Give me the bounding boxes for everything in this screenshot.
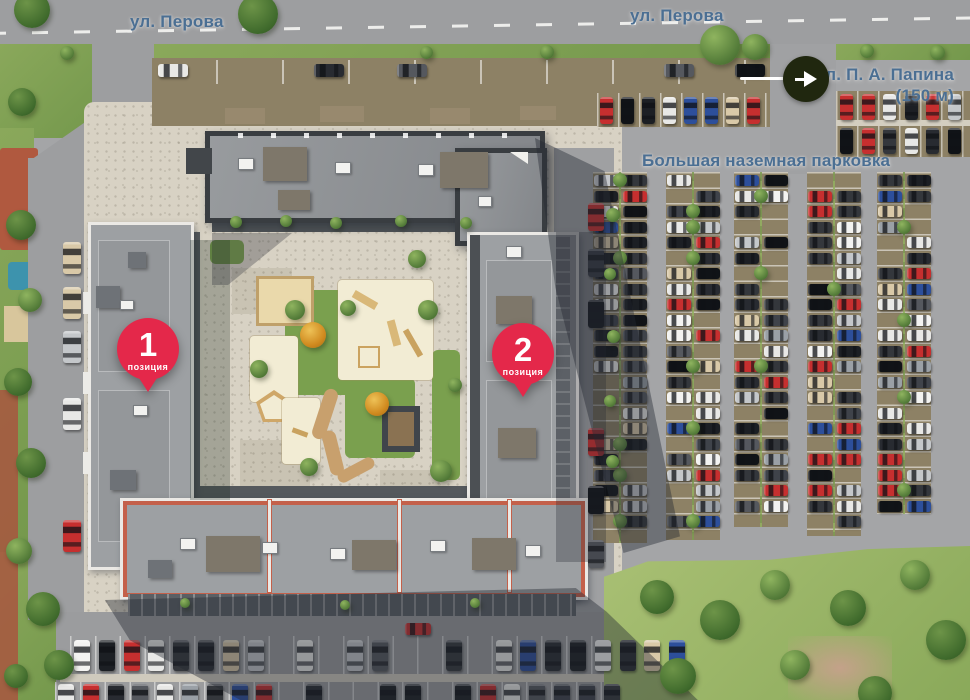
car: [664, 64, 694, 77]
building-annex: [186, 148, 212, 174]
tree-icon: [700, 25, 740, 65]
car: [837, 346, 861, 357]
tree-icon: [686, 514, 700, 528]
car: [63, 331, 81, 363]
car: [314, 64, 344, 77]
car: [124, 640, 140, 671]
car: [907, 191, 931, 202]
car: [594, 346, 618, 357]
tree-icon: [897, 220, 911, 234]
tree-icon: [613, 437, 627, 451]
tree-icon: [230, 216, 242, 228]
tree-icon: [470, 598, 480, 608]
car: [405, 623, 431, 635]
tree-icon: [60, 46, 74, 60]
car: [667, 315, 691, 326]
car: [623, 315, 647, 326]
tree-icon: [830, 590, 866, 626]
ac-unit: [238, 158, 254, 170]
car: [837, 315, 861, 326]
car: [397, 64, 427, 77]
car: [570, 640, 586, 671]
car: [948, 128, 961, 154]
car: [764, 454, 788, 465]
tree-icon: [395, 215, 407, 227]
car: [696, 408, 720, 419]
car: [837, 268, 861, 279]
marker-position-1[interactable]: 1 позиция: [117, 318, 179, 380]
car: [907, 299, 931, 310]
tree-icon: [540, 45, 554, 59]
tree-icon: [686, 251, 700, 265]
tree-icon: [900, 560, 930, 590]
label-big-parking: Большая наземная парковка: [642, 151, 890, 171]
car: [735, 470, 759, 481]
car: [764, 439, 788, 450]
tree-icon: [365, 392, 389, 416]
car: [623, 377, 647, 388]
ac-unit: [180, 538, 196, 550]
car: [735, 439, 759, 450]
car: [878, 454, 902, 465]
car: [764, 485, 788, 496]
car: [764, 346, 788, 357]
car: [588, 203, 604, 231]
car: [705, 97, 718, 124]
car: [907, 470, 931, 481]
car: [735, 237, 759, 248]
car: [496, 640, 512, 671]
car: [907, 284, 931, 295]
car: [588, 249, 604, 277]
entrance-canopy: [83, 452, 91, 474]
car: [808, 501, 832, 512]
car: [600, 97, 613, 124]
car: [907, 361, 931, 372]
car: [623, 191, 647, 202]
car: [764, 501, 788, 512]
car: [182, 684, 198, 700]
roof-box: [278, 190, 310, 210]
roof-box: [110, 470, 136, 490]
car: [764, 377, 788, 388]
car: [837, 454, 861, 465]
car: [623, 423, 647, 434]
roof-box: [263, 147, 307, 181]
lawn: [210, 240, 244, 264]
car: [594, 237, 618, 248]
car: [764, 408, 788, 419]
car: [623, 392, 647, 403]
tree-icon: [686, 359, 700, 373]
direction-arrow: [783, 56, 829, 102]
car: [735, 454, 759, 465]
roof-box: [128, 252, 146, 268]
car: [63, 242, 81, 274]
ac-unit: [418, 164, 434, 176]
car: [696, 485, 720, 496]
tree-icon: [860, 44, 874, 58]
car: [907, 175, 931, 186]
car: [907, 423, 931, 434]
car: [667, 330, 691, 341]
car: [132, 684, 148, 700]
car: [99, 640, 115, 671]
car: [747, 97, 760, 124]
car: [696, 191, 720, 202]
entrance-canopy: [83, 292, 91, 314]
tree-icon: [180, 598, 190, 608]
tree-icon: [607, 330, 620, 343]
car: [764, 175, 788, 186]
car: [579, 684, 595, 700]
car: [380, 684, 396, 700]
roof-box: [206, 536, 260, 572]
ac-unit: [335, 162, 351, 174]
marker-number: 1: [139, 328, 157, 361]
car: [735, 377, 759, 388]
tree-icon: [613, 251, 627, 265]
car: [108, 684, 124, 700]
car: [306, 684, 322, 700]
tree-icon: [16, 448, 46, 478]
car: [878, 470, 902, 481]
car: [248, 640, 264, 671]
tree-icon: [613, 173, 627, 187]
ac-unit: [430, 540, 446, 552]
car: [907, 501, 931, 512]
car: [223, 640, 239, 671]
car: [696, 299, 720, 310]
roof-box: [440, 152, 488, 188]
car: [726, 97, 739, 124]
car: [696, 470, 720, 481]
car: [837, 501, 861, 512]
tree-icon: [760, 570, 790, 600]
play-equipment: [358, 346, 380, 368]
car: [256, 684, 272, 700]
car: [837, 439, 861, 450]
car: [207, 684, 223, 700]
tree-icon: [6, 538, 32, 564]
car: [907, 377, 931, 388]
tree-icon: [340, 600, 350, 610]
car: [808, 377, 832, 388]
tree-icon: [606, 208, 620, 222]
car: [735, 423, 759, 434]
car: [878, 423, 902, 434]
car: [405, 684, 421, 700]
car: [623, 268, 647, 279]
ac-unit: [525, 545, 541, 557]
car: [529, 684, 545, 700]
car: [808, 346, 832, 357]
car: [663, 97, 676, 124]
car: [837, 361, 861, 372]
car: [907, 439, 931, 450]
car: [837, 299, 861, 310]
tree-icon: [640, 580, 674, 614]
car: [696, 268, 720, 279]
car: [594, 284, 618, 295]
car: [764, 237, 788, 248]
car: [696, 284, 720, 295]
label-street-perova-left: ул. Перова: [130, 12, 224, 32]
tree-icon: [285, 300, 305, 320]
car: [764, 315, 788, 326]
car: [735, 253, 759, 264]
car: [667, 268, 691, 279]
car: [837, 253, 861, 264]
tree-icon: [250, 360, 268, 378]
car: [764, 330, 788, 341]
car: [808, 237, 832, 248]
car: [735, 315, 759, 326]
marker-caption: позиция: [128, 362, 169, 372]
car: [808, 222, 832, 233]
car: [83, 684, 99, 700]
green-strip-top-right: [835, 44, 970, 60]
car: [642, 97, 655, 124]
car: [455, 684, 471, 700]
tree-icon: [754, 189, 768, 203]
car: [764, 392, 788, 403]
tree-icon: [780, 650, 810, 680]
car: [623, 346, 647, 357]
paver-patch: [430, 108, 470, 124]
car: [878, 175, 902, 186]
tree-icon: [460, 217, 472, 229]
car: [623, 237, 647, 248]
car: [623, 206, 647, 217]
tree-icon: [280, 215, 292, 227]
sandbox-framed: [256, 276, 314, 326]
roof-box: [352, 540, 396, 570]
tree-icon: [18, 288, 42, 312]
tree-icon: [754, 266, 768, 280]
car: [157, 684, 173, 700]
ac-unit: [330, 548, 346, 560]
car: [667, 237, 691, 248]
sidewalk-upper-right: [836, 120, 970, 126]
car: [808, 206, 832, 217]
car: [837, 485, 861, 496]
car: [735, 299, 759, 310]
car: [588, 300, 604, 328]
tree-icon: [300, 458, 318, 476]
tree-icon: [742, 34, 768, 60]
car: [297, 640, 313, 671]
tree-icon: [897, 390, 911, 404]
car: [74, 640, 90, 671]
car: [907, 268, 931, 279]
car: [504, 684, 520, 700]
roof-divider: [398, 500, 401, 592]
car: [198, 640, 214, 671]
car: [735, 392, 759, 403]
tree-icon: [330, 217, 342, 229]
tree-icon: [448, 378, 462, 392]
tree-icon: [754, 359, 768, 373]
car: [667, 454, 691, 465]
tree-icon: [408, 250, 426, 268]
tree-icon: [300, 322, 326, 348]
tree-icon: [4, 368, 32, 396]
marker-position-2[interactable]: 2 позиция: [492, 323, 554, 385]
car: [837, 408, 861, 419]
car: [372, 640, 388, 671]
car: [232, 684, 248, 700]
site-plan-map: ул. Перова ул. Перова ул. П. А. Папина (…: [0, 0, 970, 700]
roof-box: [148, 560, 172, 578]
car: [667, 299, 691, 310]
tree-icon: [4, 664, 28, 688]
car: [808, 299, 832, 310]
car: [696, 501, 720, 512]
tree-icon: [26, 592, 60, 626]
car: [667, 470, 691, 481]
car: [696, 237, 720, 248]
car: [173, 640, 189, 671]
car: [588, 486, 604, 514]
car: [808, 423, 832, 434]
car: [878, 361, 902, 372]
car: [347, 640, 363, 671]
car: [808, 315, 832, 326]
car: [684, 97, 697, 124]
tree-icon: [686, 204, 700, 218]
tree-icon: [8, 88, 36, 116]
car: [878, 299, 902, 310]
car: [623, 299, 647, 310]
car: [907, 237, 931, 248]
tree-icon: [613, 468, 627, 482]
car: [63, 287, 81, 319]
ac-unit: [262, 542, 278, 554]
arrow-right-icon: [795, 78, 804, 81]
car: [644, 640, 660, 671]
car: [623, 408, 647, 419]
car: [808, 191, 832, 202]
car: [594, 191, 618, 202]
car: [623, 485, 647, 496]
tree-icon: [604, 268, 616, 280]
car: [623, 330, 647, 341]
tree-icon: [340, 300, 356, 316]
car: [735, 284, 759, 295]
car: [878, 377, 902, 388]
car: [623, 284, 647, 295]
road-west: [28, 158, 90, 620]
car: [667, 377, 691, 388]
ac-unit: [120, 300, 134, 310]
planter-gravel: [388, 412, 414, 446]
tree-icon: [613, 514, 627, 528]
tree-icon: [418, 300, 438, 320]
car: [545, 640, 561, 671]
car: [907, 253, 931, 264]
tree-icon: [700, 600, 740, 640]
car: [808, 470, 832, 481]
paver-patch: [225, 108, 265, 124]
car: [878, 284, 902, 295]
parapet-ticks: [210, 133, 530, 138]
paver-patch: [320, 106, 364, 122]
car: [554, 684, 570, 700]
tree-icon: [660, 658, 696, 694]
marker-caption: позиция: [503, 367, 544, 377]
tree-icon: [420, 46, 433, 59]
car: [667, 392, 691, 403]
roof-box: [496, 296, 532, 324]
car: [878, 439, 902, 450]
car: [808, 454, 832, 465]
arrow-right-icon: [804, 71, 817, 87]
ac-unit: [506, 246, 522, 258]
car: [667, 346, 691, 357]
car: [735, 206, 759, 217]
tree-icon: [930, 45, 945, 60]
car: [623, 361, 647, 372]
tree-icon: [606, 455, 619, 468]
tree-icon: [897, 313, 911, 327]
car: [735, 330, 759, 341]
car: [878, 206, 902, 217]
tree-icon: [827, 282, 841, 296]
car: [735, 175, 759, 186]
car: [620, 640, 636, 671]
car: [623, 501, 647, 512]
roof-box: [498, 428, 536, 458]
car: [520, 640, 536, 671]
tree-icon: [6, 210, 36, 240]
car: [808, 253, 832, 264]
tree-icon: [430, 460, 452, 482]
car: [837, 423, 861, 434]
ac-unit: [478, 196, 492, 207]
car: [808, 361, 832, 372]
car: [594, 361, 618, 372]
car: [837, 222, 861, 233]
car: [667, 175, 691, 186]
car: [58, 684, 74, 700]
car: [480, 684, 496, 700]
car: [837, 191, 861, 202]
car: [735, 501, 759, 512]
car: [837, 330, 861, 341]
tree-icon: [44, 650, 74, 680]
car: [588, 428, 604, 456]
facade-south-inner: [198, 486, 508, 498]
car: [623, 222, 647, 233]
tree-icon: [897, 483, 911, 497]
tree-icon: [686, 421, 700, 435]
roof-box: [96, 286, 120, 308]
car: [696, 392, 720, 403]
car: [696, 454, 720, 465]
car: [446, 640, 462, 671]
car: [878, 408, 902, 419]
car: [878, 346, 902, 357]
car: [837, 206, 861, 217]
car: [878, 268, 902, 279]
car: [878, 330, 902, 341]
car: [621, 97, 634, 124]
car: [63, 520, 81, 552]
car: [878, 191, 902, 202]
car: [837, 516, 861, 527]
car: [696, 330, 720, 341]
